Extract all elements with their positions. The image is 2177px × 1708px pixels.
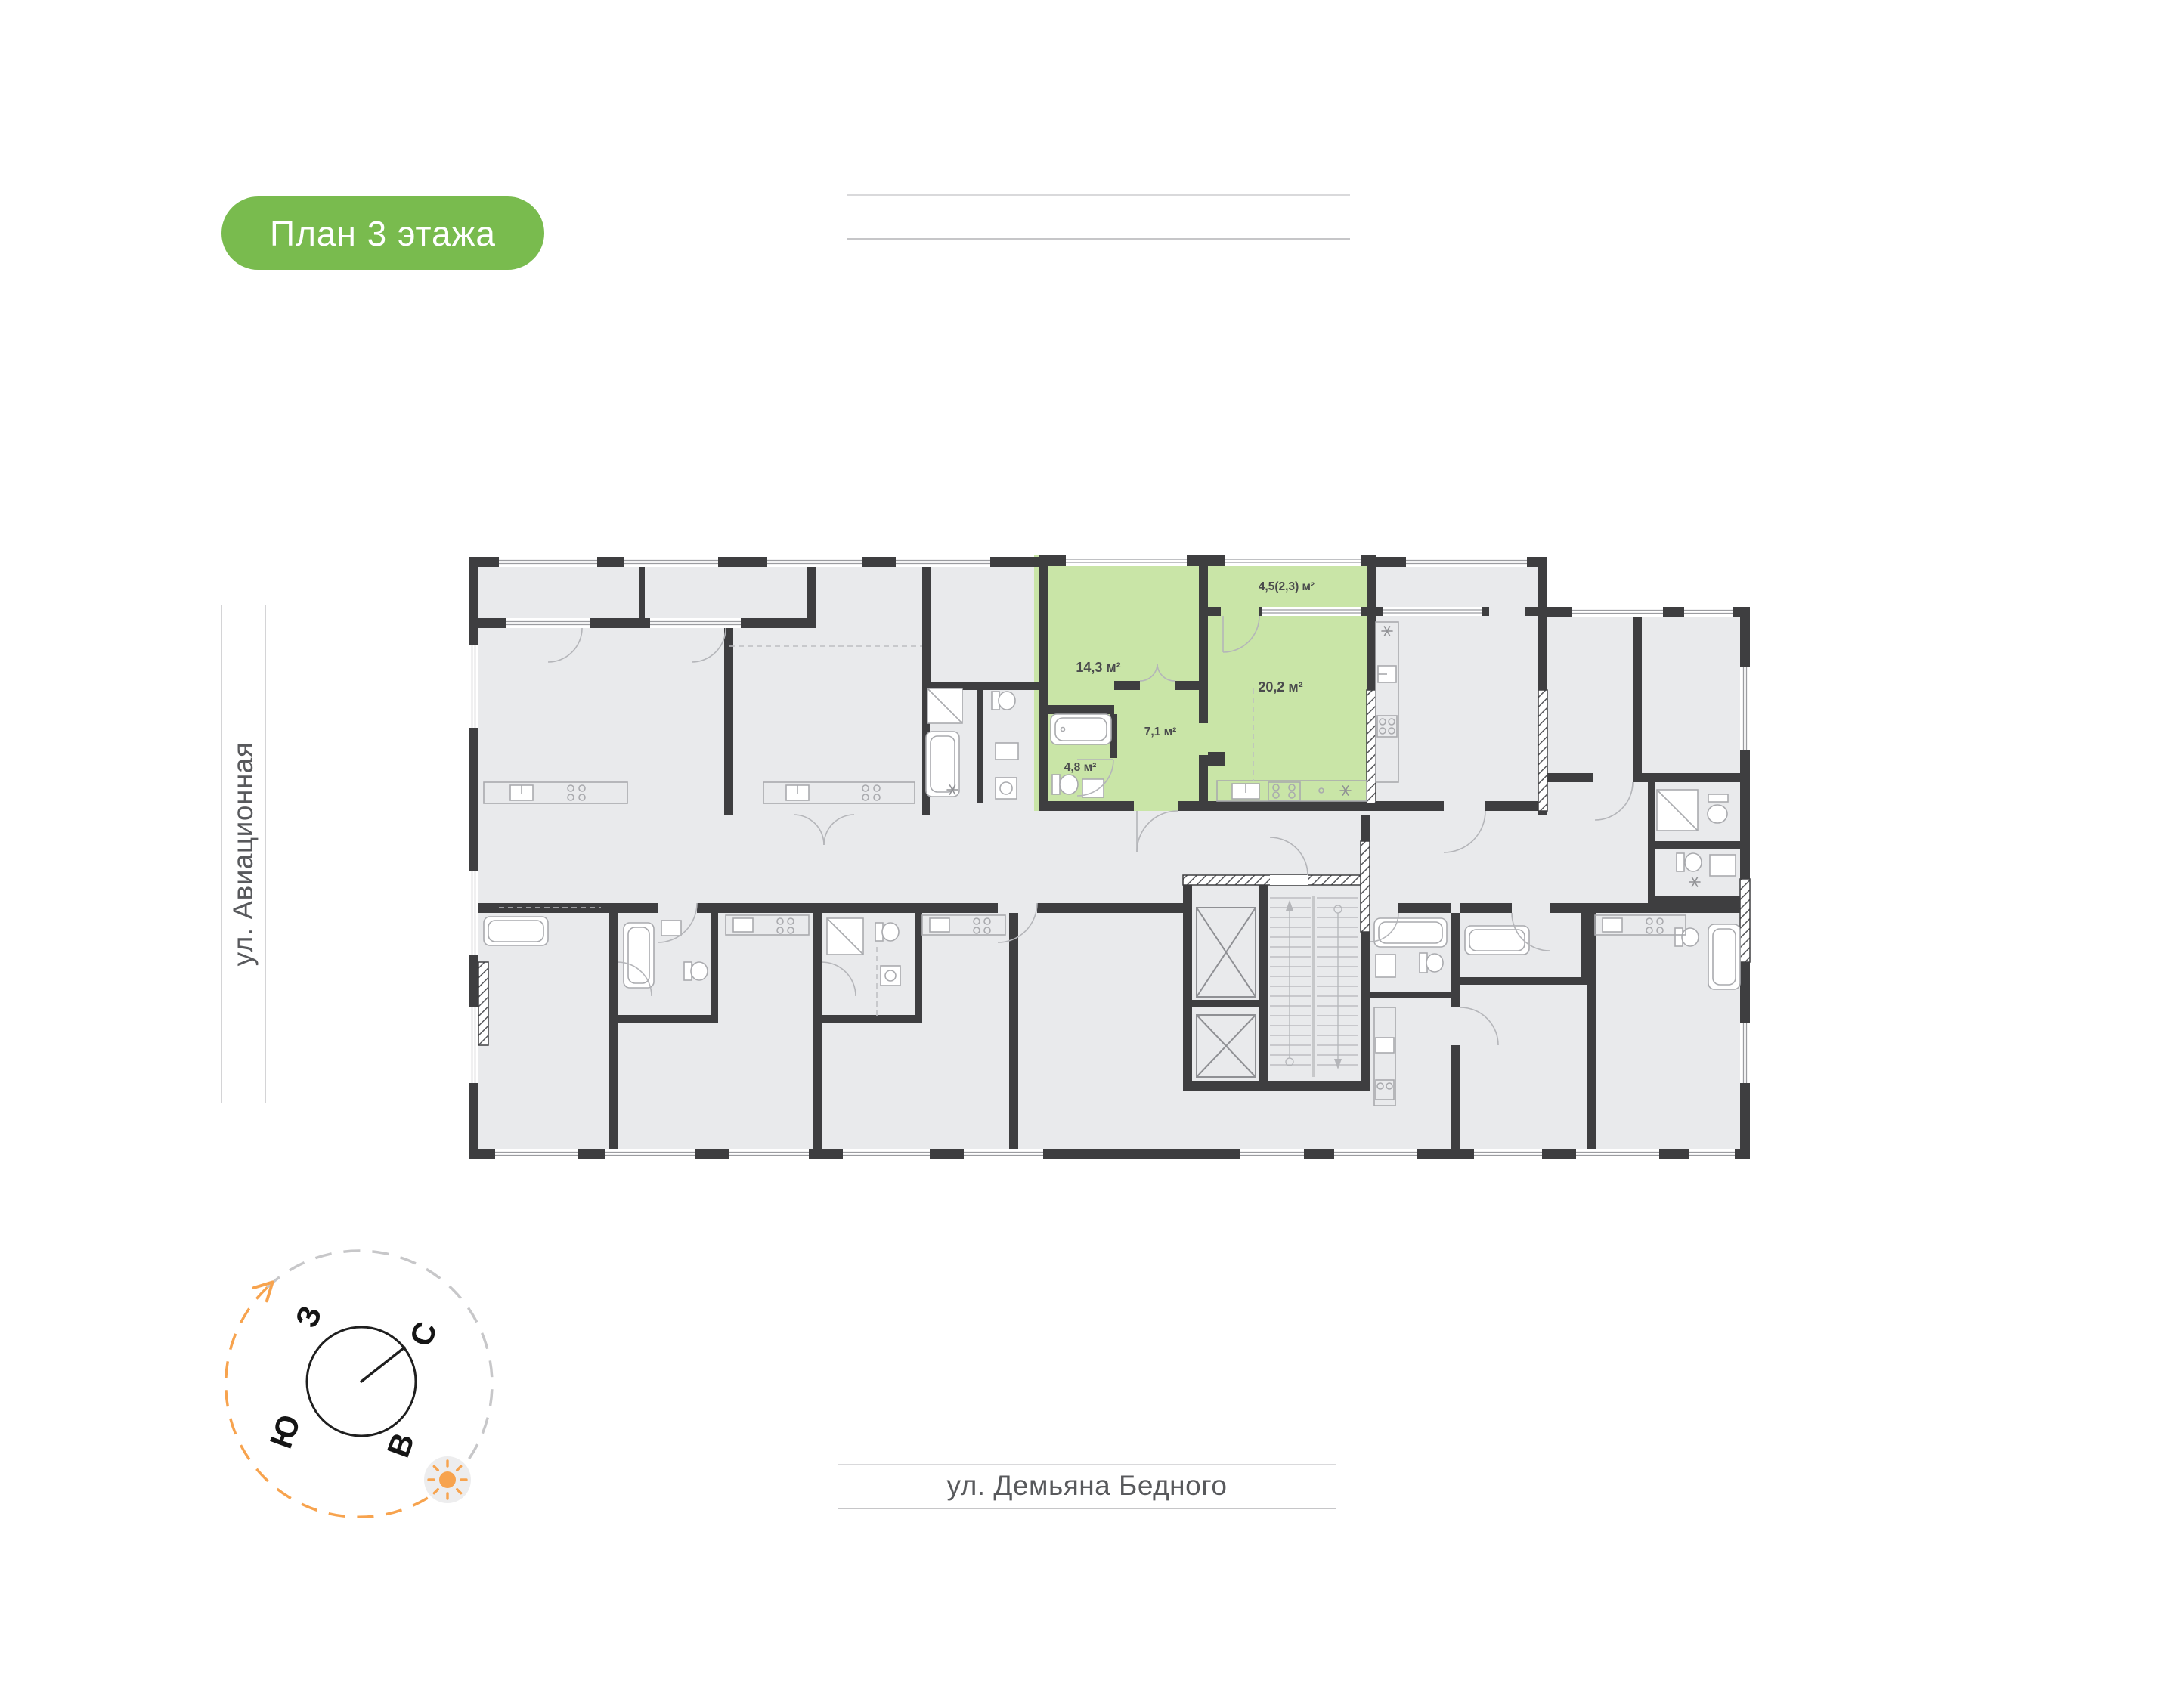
page-canvas: План 3 этажа ул. Авиационная ул. Демьяна… (0, 0, 2177, 1708)
room-area-label-balcony: 4,5(2,3) м² (1259, 580, 1315, 593)
street-label-bottom: ул. Демьяна Бедного (838, 1469, 1336, 1502)
compass-west-label: З (288, 1301, 328, 1332)
street-left-line-2 (265, 605, 266, 1103)
sun-icon (424, 1456, 471, 1503)
floor-plan: 14,3 м² 4,5(2,3) м² 20,2 м² 7,1 м² 4,8 м… (469, 554, 1763, 1166)
street-bottom-line-1 (838, 1464, 1336, 1465)
top-divider-line-1 (847, 194, 1350, 196)
street-bottom-line-2 (838, 1508, 1336, 1509)
compass-rose: З С Ю В (204, 1224, 522, 1557)
street-label-left: ул. Авиационная (225, 589, 262, 1119)
compass-dial (307, 1327, 416, 1436)
street-left-line-1 (221, 605, 222, 1103)
compass-north-label: С (403, 1317, 444, 1351)
room-area-label-living: 14,3 м² (1076, 660, 1120, 675)
compass-south-label: Ю (263, 1410, 308, 1453)
compass-east-label: В (380, 1428, 422, 1462)
floor-plan-badge: План 3 этажа (221, 196, 544, 270)
room-area-label-hall: 7,1 м² (1144, 726, 1176, 738)
top-divider-line-2 (847, 238, 1350, 240)
room-area-label-bath: 4,8 м² (1064, 761, 1096, 774)
room-area-label-kitchen: 20,2 м² (1258, 679, 1302, 695)
